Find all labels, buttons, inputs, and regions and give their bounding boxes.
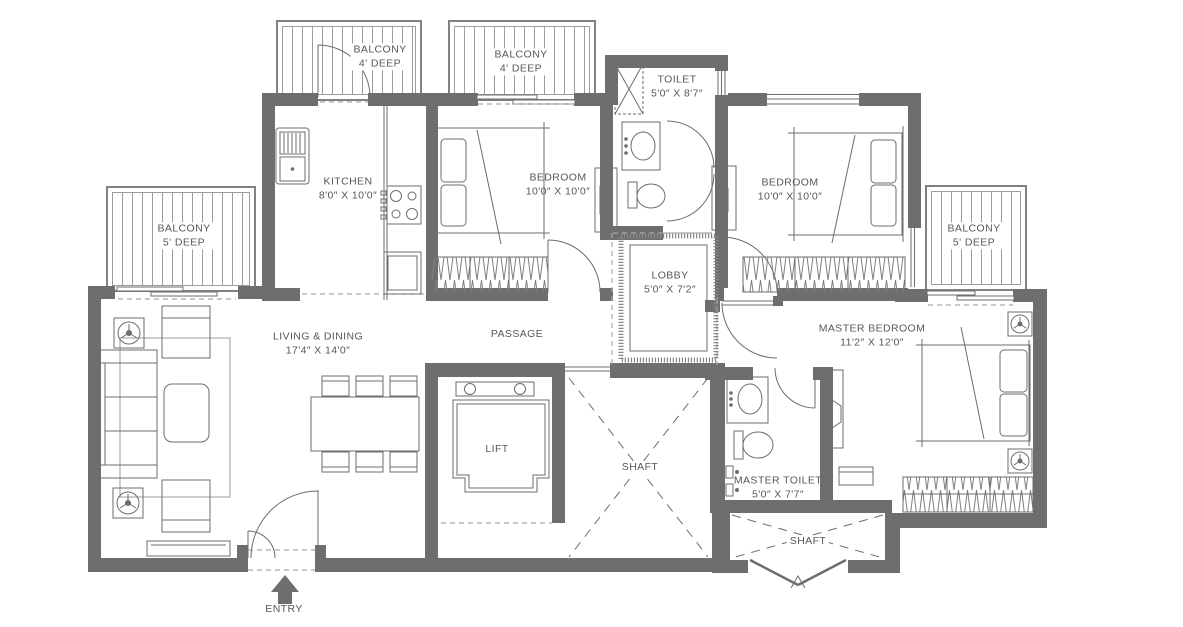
dining-table bbox=[311, 397, 419, 451]
living-rug bbox=[120, 338, 230, 497]
room-label-balcony-top-mid: BALCONY4' DEEP bbox=[492, 48, 551, 75]
room-label-toilet: TOILET5'0″ X 8'7″ bbox=[651, 73, 703, 100]
lift-car bbox=[453, 382, 549, 492]
room-label-master-toilet: MASTER TOILET5'0″ X 7'7″ bbox=[734, 474, 822, 501]
tv-cabinet bbox=[147, 541, 230, 556]
dresser-tv bbox=[826, 370, 843, 448]
toilet-duct bbox=[615, 64, 643, 114]
room-label-shaft-bottom: SHAFT bbox=[787, 535, 829, 549]
sofa bbox=[99, 350, 157, 478]
kitchen-sink bbox=[276, 128, 309, 184]
plant-icon bbox=[113, 488, 143, 518]
washbasin bbox=[622, 122, 660, 170]
plant-icon bbox=[1008, 449, 1032, 473]
room-label-kitchen: KITCHEN8'0″ X 10'0″ bbox=[319, 175, 377, 202]
entry-arrow-icon bbox=[271, 575, 299, 604]
plan-linework bbox=[0, 0, 1183, 627]
floor-plan: BALCONY4' DEEP BALCONY4' DEEP TOILET5'0″… bbox=[0, 0, 1183, 627]
room-label-balcony-right: BALCONY5' DEEP bbox=[945, 222, 1004, 249]
plant-icon bbox=[1008, 312, 1032, 336]
armchair bbox=[162, 306, 210, 358]
armchair bbox=[162, 480, 210, 532]
room-label-lift: LIFT bbox=[485, 443, 508, 457]
coffee-table bbox=[164, 384, 209, 442]
washbasin bbox=[727, 377, 768, 423]
shaft-doors bbox=[750, 560, 846, 588]
room-label-bedroom-2: BEDROOM10'0″ X 10'0″ bbox=[758, 176, 823, 203]
room-label-bedroom-1: BEDROOM10'0″ X 10'0″ bbox=[526, 171, 591, 198]
room-label-shaft-main: SHAFT bbox=[619, 461, 661, 475]
bench bbox=[839, 467, 873, 485]
wardrobe bbox=[431, 257, 548, 292]
stove bbox=[381, 186, 421, 224]
lobby-rug bbox=[621, 236, 716, 360]
entry-label: ENTRY bbox=[265, 603, 302, 617]
room-label-passage: PASSAGE bbox=[491, 328, 543, 342]
toilet-wc bbox=[734, 431, 773, 459]
door-swing bbox=[248, 45, 815, 558]
bed bbox=[916, 327, 1030, 447]
toilet-wc bbox=[628, 182, 665, 208]
wardrobe bbox=[743, 257, 905, 292]
room-label-balcony-top-left: BALCONY4' DEEP bbox=[351, 43, 410, 70]
kitchen-cabinet bbox=[384, 252, 421, 294]
plant-icon bbox=[114, 318, 144, 348]
room-label-living-dining: LIVING & DINING17'4″ X 14'0″ bbox=[273, 330, 363, 357]
dresser-tv bbox=[712, 166, 736, 230]
room-label-balcony-left: BALCONY5' DEEP bbox=[155, 222, 214, 249]
room-label-lobby: LOBBY5'0″ X 7'2″ bbox=[641, 269, 699, 296]
dresser-tv bbox=[595, 168, 617, 232]
dining-chair bbox=[322, 376, 417, 472]
wardrobe bbox=[903, 477, 1033, 512]
room-label-master-bedroom: MASTER BEDROOM11'2″ X 12'0″ bbox=[819, 322, 926, 349]
